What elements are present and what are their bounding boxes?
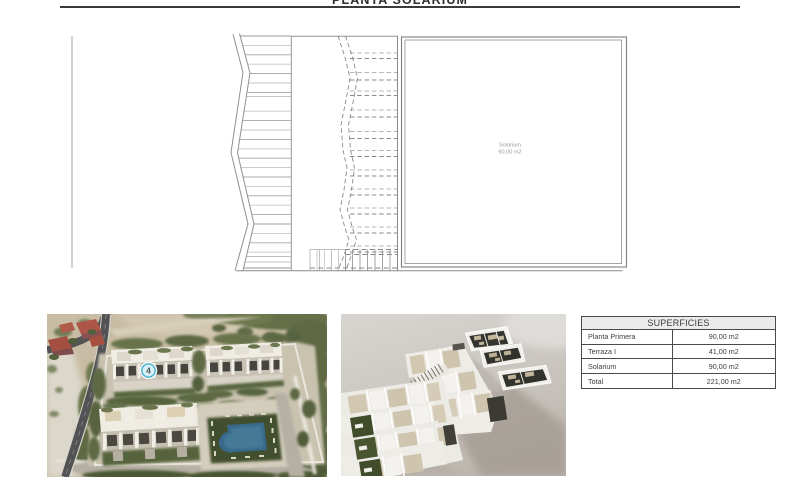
svg-text:90,00 m2: 90,00 m2 <box>498 150 521 156</box>
svg-text:Solarium: Solarium <box>499 143 521 149</box>
svg-text:4: 4 <box>146 366 151 376</box>
